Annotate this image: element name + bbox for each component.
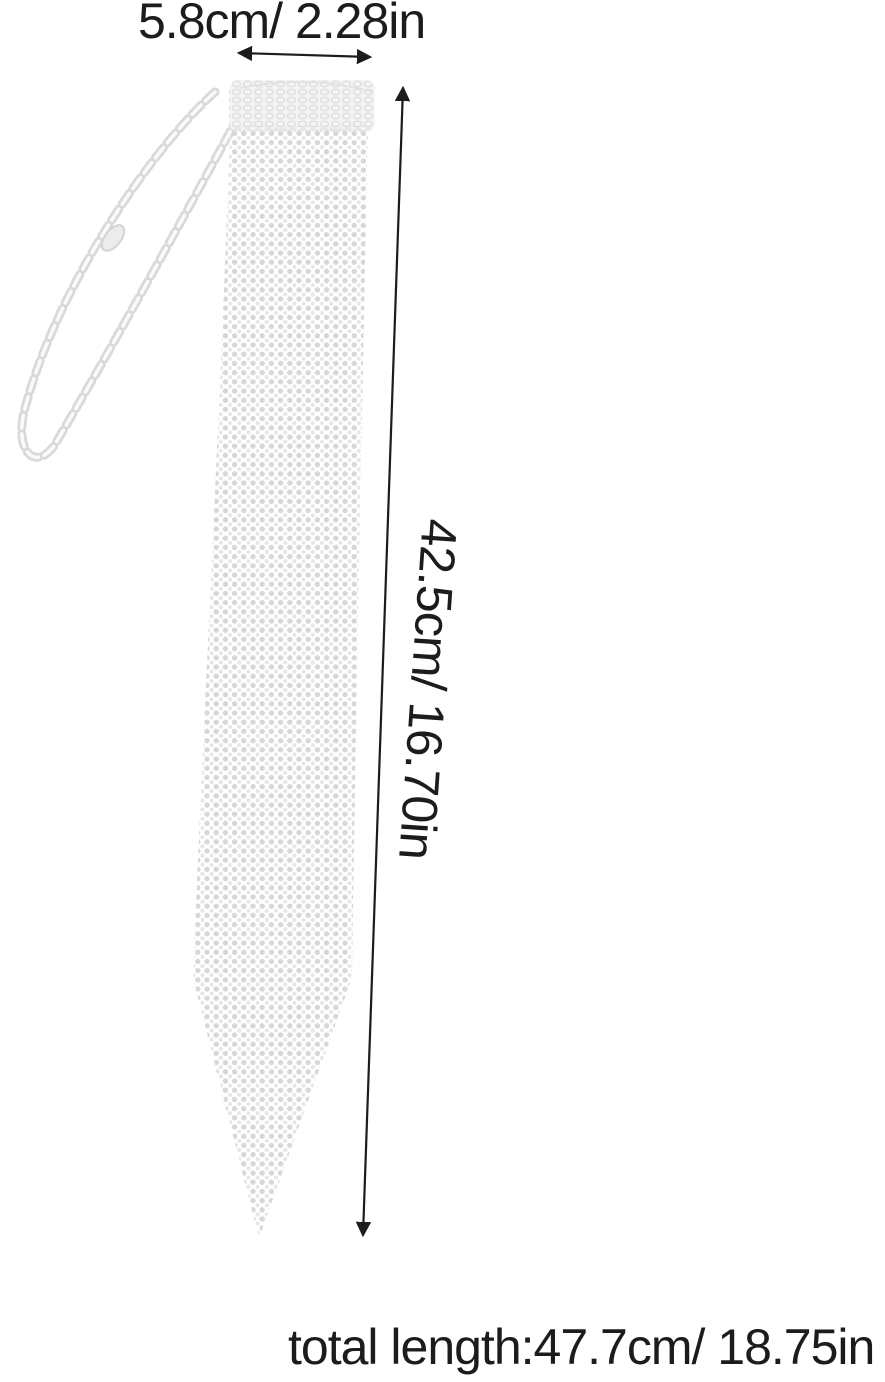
length-dimension-arrow <box>363 88 403 1235</box>
product-dimension-diagram: 5.8cm/ 2.28in 42.5cm/ 16.70in total leng… <box>0 0 885 1382</box>
total-length-label: total length:47.7cm/ 18.75in <box>288 1320 874 1374</box>
width-dimension-label: 5.8cm/ 2.28in <box>138 0 425 48</box>
tie-body <box>193 126 368 1238</box>
neck-chain <box>22 92 242 457</box>
tie-knot <box>229 80 375 132</box>
width-dimension-arrow <box>239 53 370 57</box>
